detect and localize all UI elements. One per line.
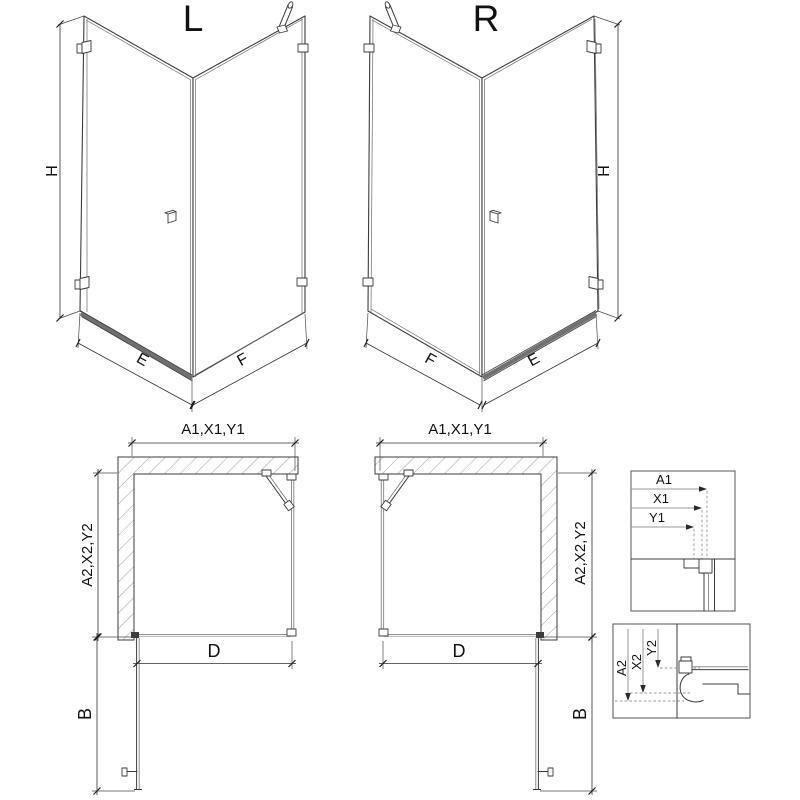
dim-label-e: E [133, 350, 151, 370]
wall-profile-section [684, 559, 715, 611]
glass-panels-left-view [80, 16, 305, 377]
open-door-plan [534, 632, 554, 790]
dim-label-d: D [453, 641, 466, 661]
dim-label-a1x1y1: A1,X1,Y1 [428, 421, 491, 438]
detail-wall-profile: A1 X1 Y1 [631, 471, 735, 611]
dim-label-b: B [75, 708, 95, 720]
dim-label-f: F [422, 350, 439, 370]
detail-arrow-a2: A2 [614, 629, 684, 701]
walls-hatched [118, 457, 298, 640]
wall-bracket-top-icon [364, 44, 374, 52]
dim-label-d: D [208, 641, 221, 661]
view-label-left: L [183, 0, 204, 39]
dim-label-a2x2y2: A2,X2,Y2 [572, 521, 589, 584]
walls-hatched [375, 457, 557, 640]
dim-height-left: H [44, 16, 84, 322]
iso-view-right: R [363, 0, 622, 412]
shower-enclosure-diagram: L [0, 0, 800, 800]
glass-panels-right-view [368, 16, 599, 377]
tray-profile-section [679, 657, 749, 702]
detail-arrow-y1: Y1 [631, 510, 694, 559]
detail-tray-profile: A2 X2 Y2 [613, 624, 750, 718]
door-handle-plan-icon [538, 768, 553, 776]
dim-label-f: F [234, 350, 251, 370]
dim-label-h: H [596, 165, 613, 177]
plan-view-right: A1,X1,Y1 A2,X2,Y2 D B [375, 421, 597, 795]
detail-label-x1: X1 [653, 491, 669, 506]
fixed-glass-plan [136, 474, 296, 636]
dim-door-width: D [133, 641, 296, 669]
hinge-top-icon [77, 41, 91, 54]
hinge-bottom-icon [589, 277, 603, 290]
hinge-top-icon [587, 41, 601, 54]
view-label-right: R [473, 0, 500, 39]
detail-label-y2: Y2 [644, 640, 659, 656]
dim-label-h: H [44, 165, 61, 177]
dim-height-right: H [594, 16, 622, 322]
detail-label-y1: Y1 [649, 510, 665, 525]
open-door-plan [122, 632, 142, 790]
dim-label-a2x2y2: A2,X2,Y2 [79, 523, 96, 586]
fixed-glass-plan [379, 474, 539, 636]
wall-bracket-bottom-icon [363, 278, 373, 286]
dim-label-b: B [570, 708, 590, 720]
detail-label-a2: A2 [614, 660, 629, 676]
dim-door-width: D [379, 641, 542, 669]
wall-bracket-bottom-icon [297, 278, 307, 286]
plan-view-left: A1,X1,Y1 A2,X2,Y2 D B [75, 421, 299, 795]
dim-label-e: E [525, 350, 543, 370]
door-handle-plan-icon [122, 768, 137, 776]
detail-label-a1: A1 [656, 472, 672, 487]
dim-label-a1x1y1: A1,X1,Y1 [181, 421, 244, 438]
wall-bracket-top-icon [298, 44, 308, 52]
detail-label-x2: X2 [629, 654, 644, 670]
iso-view-left: L [44, 0, 309, 412]
hinge-bottom-icon [75, 277, 89, 290]
